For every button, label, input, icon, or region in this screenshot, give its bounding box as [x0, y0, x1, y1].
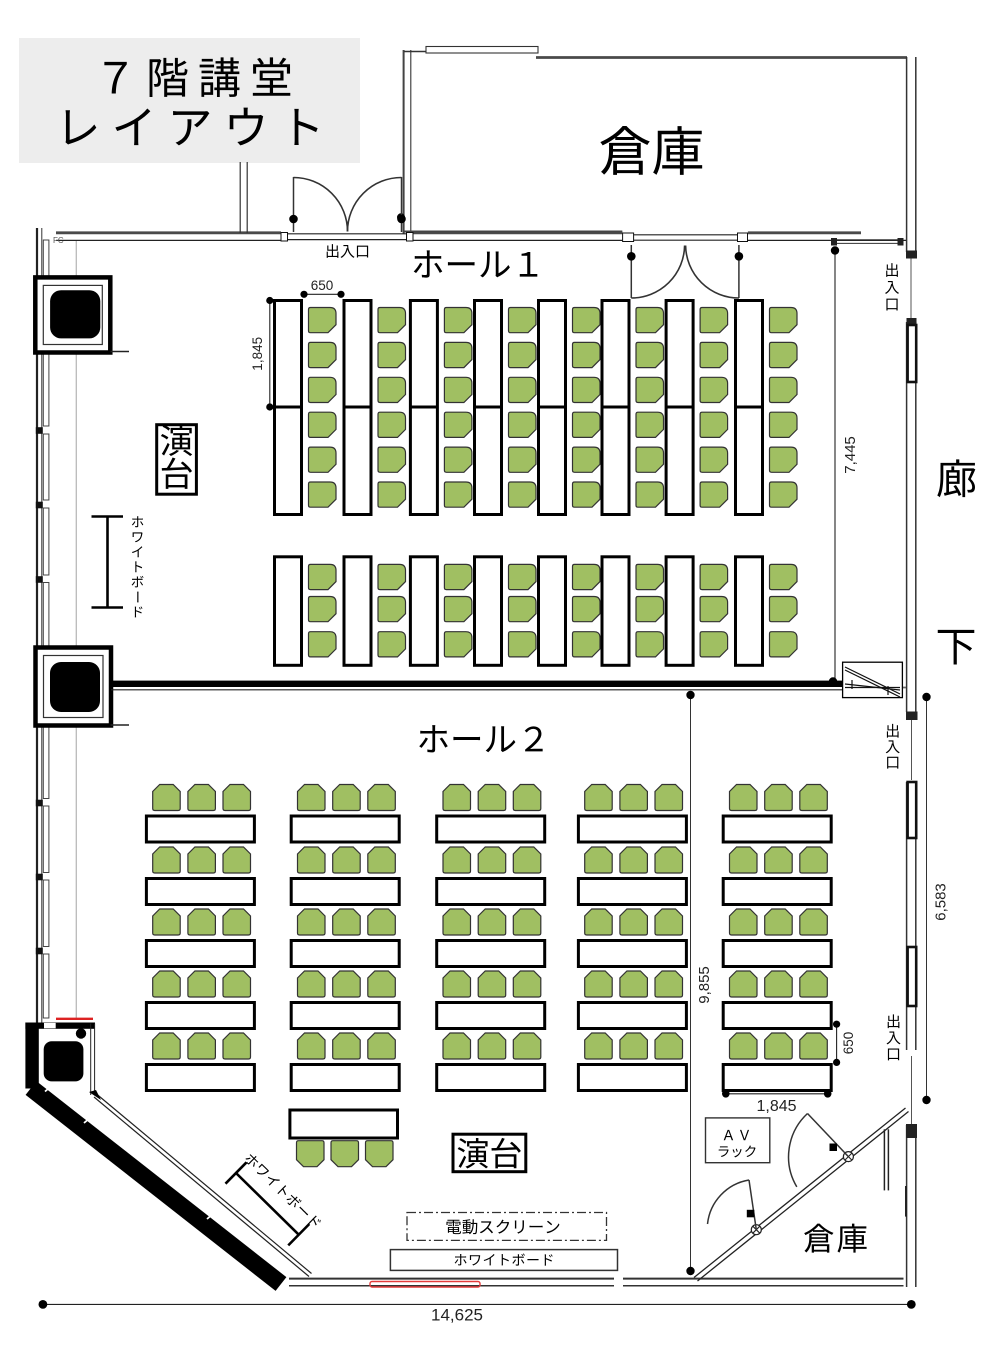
svg-text:1,845: 1,845: [250, 337, 265, 371]
svg-text:14,625: 14,625: [431, 1305, 483, 1324]
svg-text:9,855: 9,855: [696, 966, 713, 1004]
svg-text:650: 650: [841, 1032, 856, 1055]
svg-text:FC: FC: [53, 236, 64, 245]
svg-text:1,845: 1,845: [756, 1098, 796, 1115]
svg-text:650: 650: [311, 278, 334, 293]
svg-text:6,583: 6,583: [933, 883, 950, 921]
svg-text:7,445: 7,445: [842, 436, 859, 474]
